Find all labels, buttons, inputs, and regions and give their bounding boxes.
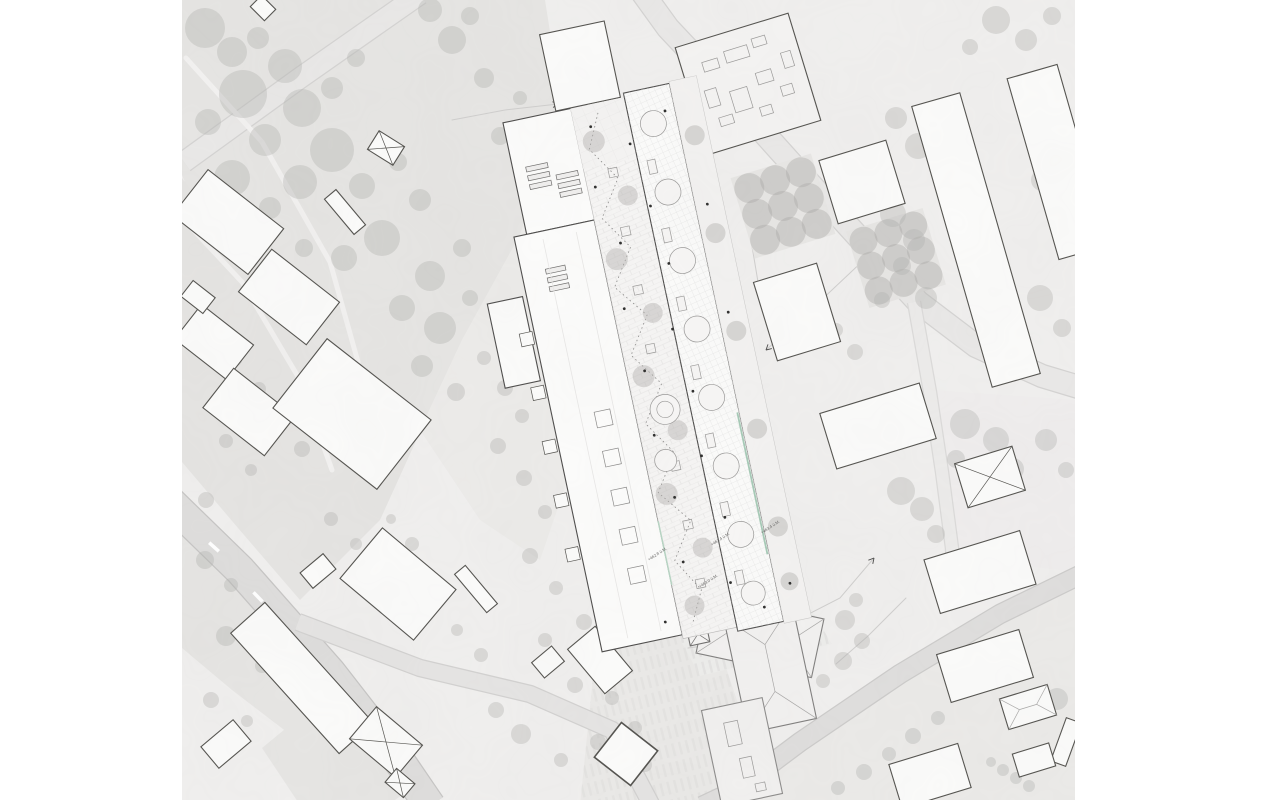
- paper-texture: [182, 0, 1075, 800]
- site-plan-canvas: +463.4 ü.M.+463.4 ü.M.+462.8 ü.M.+463.0 …: [0, 0, 1263, 800]
- page: +463.4 ü.M.+463.4 ü.M.+462.8 ü.M.+463.0 …: [0, 0, 1263, 800]
- site-plan: +463.4 ü.M.+463.4 ü.M.+462.8 ü.M.+463.0 …: [0, 0, 1263, 800]
